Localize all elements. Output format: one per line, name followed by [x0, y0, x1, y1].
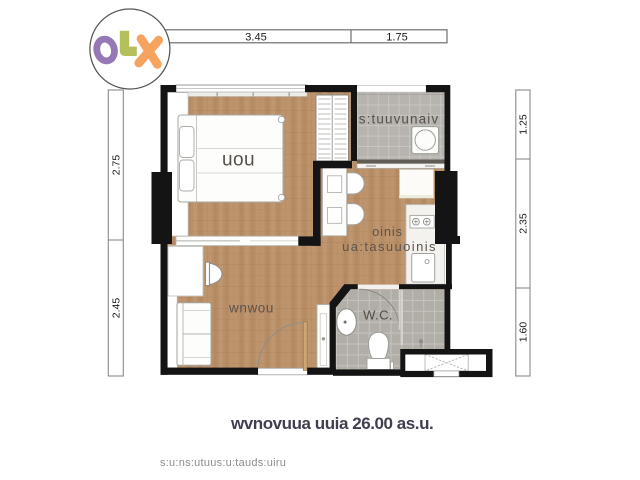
svg-text:3.45: 3.45 [245, 32, 266, 44]
svg-text:2.45: 2.45 [111, 298, 123, 319]
svg-text:uou: uou [222, 150, 255, 171]
svg-text:W.C.: W.C. [363, 308, 393, 323]
svg-text:s:tuuvunaiv: s:tuuvunaiv [359, 112, 439, 127]
svg-text:s:u:ns:utuus:u:tauds:uiru: s:u:ns:utuus:u:tauds:uiru [160, 457, 286, 469]
svg-text:2.75: 2.75 [111, 155, 123, 176]
svg-text:ua:tasuuoinis: ua:tasuuoinis [342, 239, 437, 254]
svg-text:2.35: 2.35 [518, 213, 530, 234]
svg-text:1.25: 1.25 [518, 114, 530, 135]
svg-text:wvnovuua uuia 26.00 as.u.: wvnovuua uuia 26.00 as.u. [230, 414, 433, 433]
svg-text:oinis: oinis [372, 224, 403, 239]
svg-text:1.60: 1.60 [518, 322, 530, 343]
svg-text:wnwou: wnwou [228, 301, 274, 316]
svg-text:1.75: 1.75 [386, 32, 407, 44]
